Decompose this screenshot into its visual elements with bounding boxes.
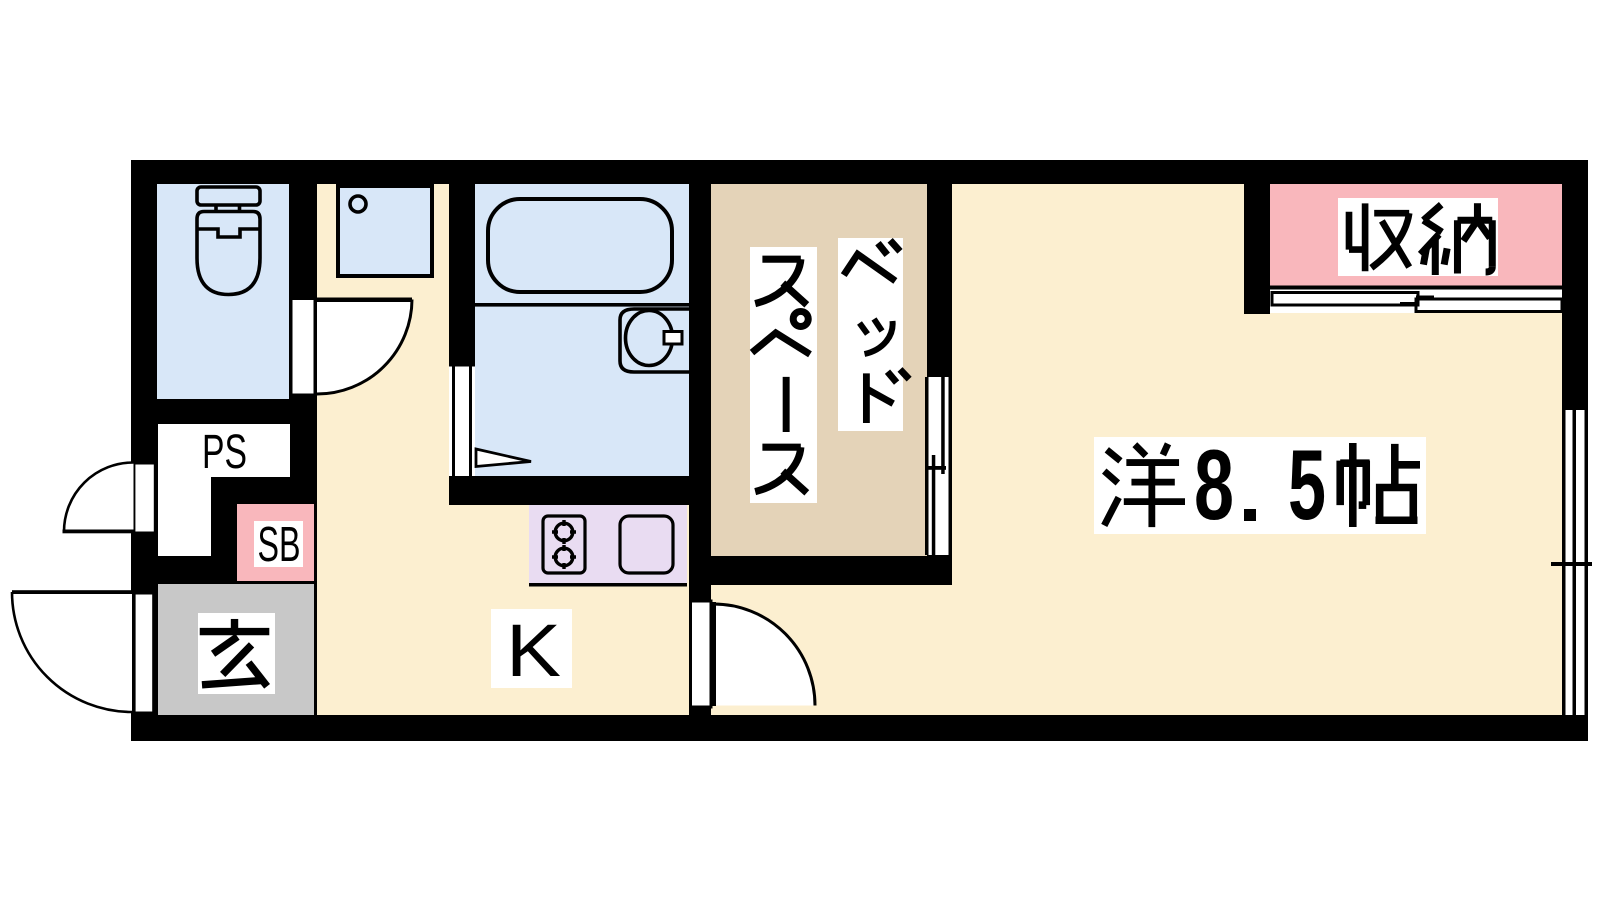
svg-text:8: 8 — [1194, 429, 1234, 540]
svg-text:PS: PS — [202, 426, 247, 479]
svg-text:5: 5 — [1288, 429, 1326, 540]
svg-text:K: K — [506, 609, 561, 692]
svg-text:SB: SB — [258, 518, 301, 572]
